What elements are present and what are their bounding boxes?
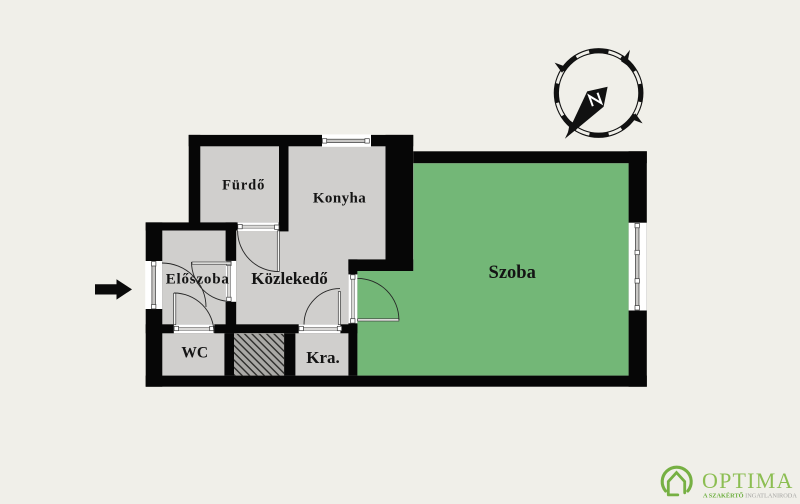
- svg-text:Konyha: Konyha: [313, 191, 366, 207]
- svg-text:WC: WC: [181, 345, 208, 362]
- svg-text:OPTIMA: OPTIMA: [702, 468, 794, 493]
- svg-text:A SZAKÉRTŐ INGATLANIRODA: A SZAKÉRTŐ INGATLANIRODA: [703, 492, 797, 500]
- svg-text:Fürdő: Fürdő: [222, 178, 265, 194]
- svg-text:Kra.: Kra.: [306, 348, 340, 367]
- svg-text:Közlekedő: Közlekedő: [251, 269, 328, 288]
- svg-text:Előszoba: Előszoba: [166, 271, 230, 287]
- svg-text:Szoba: Szoba: [489, 263, 536, 283]
